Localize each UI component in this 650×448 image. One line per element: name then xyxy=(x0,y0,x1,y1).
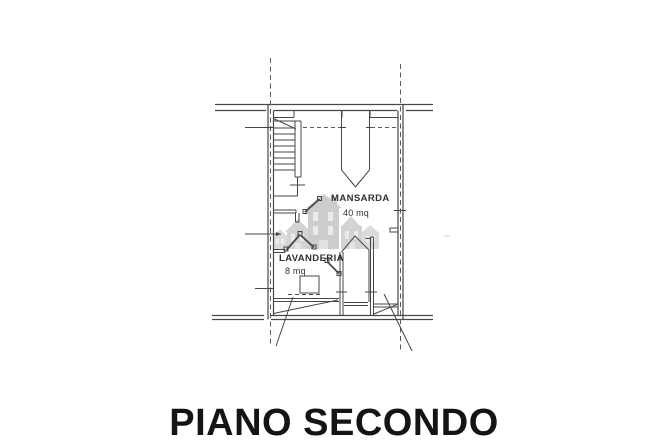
room-area-lavanderia: 8 mq xyxy=(285,266,306,276)
chimney-void xyxy=(338,111,374,187)
room-label-mansarda: MANSARDA xyxy=(331,193,390,204)
room-label-lavanderia: LAVANDERIA xyxy=(279,253,344,264)
floor-plan-drawing xyxy=(0,0,650,448)
floor-plan-page: MANSARDA 40 mq LAVANDERIA 8 mq PIANO SEC… xyxy=(0,0,650,448)
staircase xyxy=(274,119,306,197)
plan-title: PIANO SECONDO xyxy=(0,402,650,445)
stray-mark xyxy=(444,235,450,237)
room-area-mansarda: 40 mq xyxy=(343,208,369,218)
washing-machine xyxy=(288,276,321,295)
